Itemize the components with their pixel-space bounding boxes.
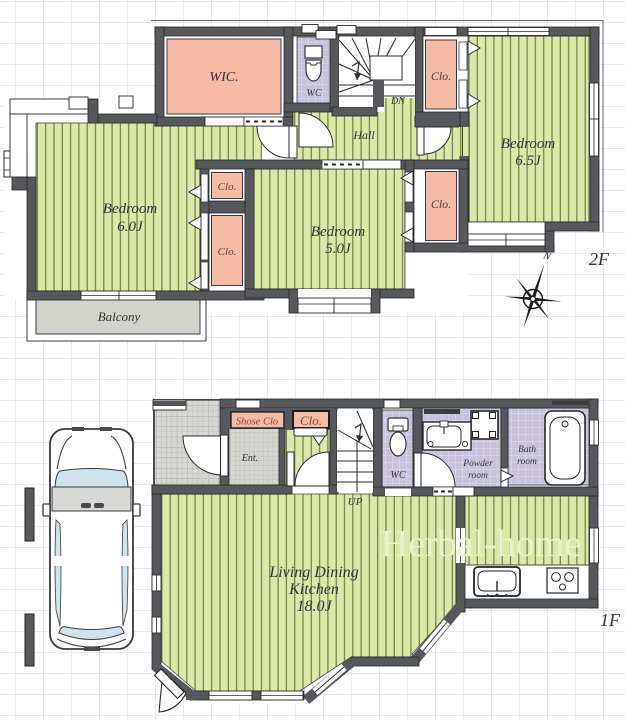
- svg-text:Clo.: Clo.: [300, 413, 322, 428]
- svg-text:1F: 1F: [600, 610, 621, 630]
- svg-text:Living Dining: Living Dining: [268, 564, 358, 581]
- svg-text:Bedroom: Bedroom: [311, 224, 366, 240]
- svg-text:Balcony: Balcony: [98, 309, 141, 324]
- svg-text:Powder: Powder: [462, 459, 493, 469]
- svg-text:WC: WC: [307, 88, 322, 99]
- svg-text:2F: 2F: [589, 249, 610, 269]
- svg-text:DN: DN: [390, 96, 406, 107]
- svg-text:WC: WC: [391, 470, 406, 481]
- svg-text:18.0J: 18.0J: [296, 598, 332, 615]
- svg-text:room: room: [517, 457, 537, 467]
- svg-text:5.0J: 5.0J: [325, 241, 352, 257]
- svg-text:WIC.: WIC.: [209, 70, 238, 85]
- svg-text:Clo.: Clo.: [218, 246, 237, 258]
- svg-text:Bedroom: Bedroom: [501, 136, 556, 152]
- svg-text:Clo.: Clo.: [431, 197, 451, 211]
- svg-text:Clo.: Clo.: [431, 69, 451, 83]
- svg-text:Bedroom: Bedroom: [103, 201, 158, 217]
- svg-text:Hall: Hall: [352, 128, 375, 142]
- svg-text:Ent.: Ent.: [241, 453, 258, 464]
- svg-text:6.0J: 6.0J: [117, 219, 144, 235]
- svg-text:6.5J: 6.5J: [515, 153, 542, 169]
- svg-text:Bath: Bath: [518, 445, 536, 455]
- svg-text:room: room: [468, 471, 488, 481]
- svg-text:Kitchen: Kitchen: [288, 581, 339, 598]
- svg-text:Herbal-home: Herbal-home: [381, 523, 581, 565]
- svg-text:Clo.: Clo.: [218, 181, 237, 193]
- svg-text:UP: UP: [348, 496, 363, 508]
- svg-text:Shose Clo: Shose Clo: [236, 417, 278, 428]
